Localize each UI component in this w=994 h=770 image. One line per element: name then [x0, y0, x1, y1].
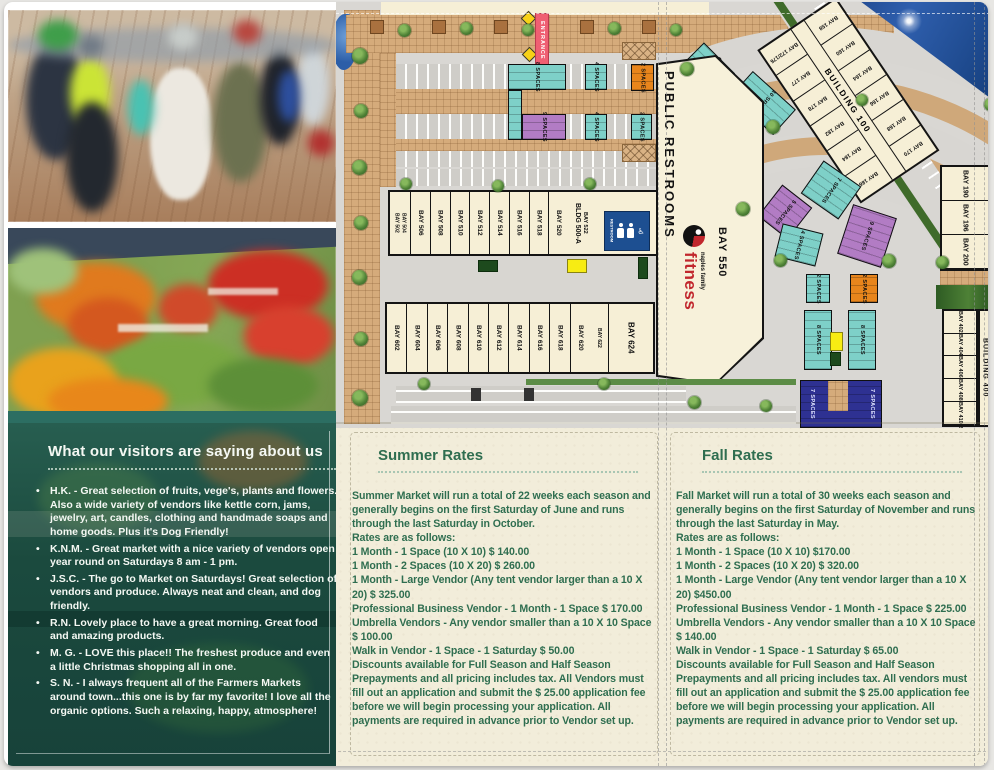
bay-label: BAY 608: [454, 325, 461, 351]
bay-label: BAY 412: [957, 425, 963, 428]
testimonial-item: • J.S.C. - The go to Market on Saturdays…: [36, 573, 338, 614]
bay-cell: BAY 520: [549, 192, 568, 254]
photo-produce: [8, 228, 336, 425]
bay-cell: BAY 190: [942, 167, 988, 201]
bay-label: BAY 602: [393, 325, 400, 351]
bay-label: BAY 164: [852, 64, 873, 81]
walkway-band: [380, 89, 682, 114]
walkway-column: [380, 53, 396, 187]
tree: [936, 256, 949, 269]
person-shape: [128, 80, 154, 135]
testimonial-item: • K.N.M. - Great market with a nice vari…: [36, 543, 338, 570]
fall-rates-panel: Fall Rates Fall Market will run a total …: [668, 423, 980, 766]
vendor-block: 8 SPACES: [848, 310, 876, 370]
building-400-bays: BAY 402BAY 404BAY 406BAY 408BAY 410BAY 4…: [942, 309, 978, 427]
planter-bed: [478, 260, 498, 272]
bay-cell: BAY 602: [387, 304, 407, 372]
testimonial-text: H.K. - Great selection of fruits, vege's…: [50, 485, 338, 540]
tree: [352, 48, 368, 64]
rates-line: Professional Business Vendor - 1 Month -…: [352, 602, 658, 616]
vendor-block-teal-arm: [508, 90, 522, 140]
bullet: •: [36, 677, 50, 718]
summer-rates-title: Summer Rates: [378, 447, 483, 464]
tree: [400, 178, 412, 190]
bay-label: BAY 166: [869, 89, 890, 106]
bay-label: BAY 614: [516, 325, 523, 351]
vendor-block-teal-8: 8 SPACES: [508, 64, 566, 90]
testimonial-item: • R.N. Lovely place to have a great morn…: [36, 617, 338, 644]
bay-label: BAY 610: [475, 325, 482, 351]
testimonial-text: M. G. - LOVE this place!! The freshest p…: [50, 647, 338, 674]
bay-label: BAY 184: [841, 144, 862, 161]
bay-cell: BAY 200: [942, 235, 988, 269]
rates-line: Walk in Vendor - 1 Space - 1 Saturday $ …: [352, 644, 658, 658]
trim-guide: [336, 13, 988, 14]
tree: [680, 62, 694, 76]
tree: [760, 400, 772, 412]
tree: [418, 378, 430, 390]
tree: [398, 24, 411, 37]
bay-cell-622: BAY 622: [590, 304, 609, 372]
photo-market-crowd: [8, 10, 336, 222]
tree: [688, 396, 701, 409]
bay-cell: BAY 610: [469, 304, 489, 372]
bullet: •: [36, 485, 50, 540]
tree: [584, 178, 596, 190]
bay-label: BAY 622: [596, 328, 602, 348]
trim-guide: [984, 2, 985, 766]
person-shape: [66, 102, 118, 212]
person-shape: [213, 62, 268, 182]
person-shape: [233, 20, 261, 44]
bay-cell: BAY 406: [944, 356, 976, 379]
plaza: [380, 256, 668, 302]
red-bag: [308, 130, 334, 156]
site-map: ENTRANCE 8 SPACES 9 SPACES 4 SPACES 4 SP…: [336, 2, 988, 428]
bay-522-label: BAY 522: [582, 212, 588, 234]
bay-label: BAY 510: [456, 210, 463, 236]
bay-cells-506-520: BAY 506BAY 508BAY 510BAY 512BAY 514BAY 5…: [411, 192, 568, 254]
bay-label: BAY 408: [957, 379, 963, 401]
right-bays: BAY 190BAY 196BAY 200: [940, 165, 988, 271]
bay-cell: BAY 402: [944, 311, 976, 334]
greenery-band: [936, 285, 988, 309]
bay-label: BAY 606: [434, 325, 441, 351]
bay-cell: BAY 606: [428, 304, 448, 372]
parking-row: [394, 169, 670, 186]
bay-550-label: BAY 550: [716, 227, 728, 277]
tree: [492, 180, 504, 192]
lattice-planter: [622, 144, 656, 162]
vendor-block-teal-2: 2 SPACES: [631, 114, 652, 140]
planter-bed: [830, 352, 841, 366]
rates-line: Walk in Vendor - 1 Space - 1 Saturday $ …: [676, 644, 980, 658]
bldg-500a-cell: BLDG 500-A BAY 522 RESTROOM ♿: [568, 192, 656, 254]
parking-row: [396, 386, 686, 403]
rates-line: 1 Month - 2 Spaces (10 X 20) $ 260.00: [352, 559, 658, 573]
trim-guide: [974, 2, 975, 766]
restroom-sign-label: RESTROOM: [609, 219, 614, 242]
bay-label: BAY 604: [414, 325, 421, 351]
rates-line: Umbrella Vendors - Any vendor smaller th…: [676, 616, 980, 644]
testimonials-list: • H.K. - Great selection of fruits, vege…: [36, 485, 338, 721]
handicap-stall: [524, 388, 534, 401]
vendor-block-purple-9: 9 SPACES: [522, 114, 566, 140]
tree: [608, 22, 621, 35]
fold-guide: [666, 2, 667, 766]
planter-bed: [638, 257, 648, 279]
testimonial-item: • M. G. - LOVE this place!! The freshest…: [36, 647, 338, 674]
rates-line: Rates are as follows:: [676, 531, 980, 545]
bay-label: BAY 506: [417, 210, 424, 236]
fitness-wordmark: fitness: [683, 252, 700, 310]
public-restrooms-label: PUBLIC RESTROOMS: [662, 71, 677, 369]
bay-label: BAY 200: [962, 238, 969, 266]
tree: [354, 332, 368, 346]
summer-rates-panel: Summer Rates Summer Market will run a to…: [348, 423, 660, 766]
person-shape: [38, 20, 78, 50]
tree: [856, 94, 868, 106]
tree: [522, 24, 534, 36]
brussels-sprouts: [8, 248, 78, 294]
rates-line: Discounts available for Full Season and …: [352, 658, 658, 728]
vendor-block-navy: 7 SPACES 7 SPACES: [800, 380, 882, 428]
bay-label: BAY 402: [957, 311, 963, 333]
fall-rates-text: Fall Market will run a total of 30 weeks…: [676, 489, 980, 728]
bay-label: BAY 190: [962, 170, 969, 198]
bay-label: BAY 508: [437, 210, 444, 236]
tomatoes: [244, 306, 334, 366]
tree: [882, 254, 896, 268]
tree: [766, 120, 780, 134]
vendor-block: 2 SPACES: [850, 274, 878, 303]
bay-cell: BAY 618: [550, 304, 570, 372]
bay-cell: BAY 516: [510, 192, 530, 254]
bullet: •: [36, 617, 50, 644]
rates-line: Umbrella Vendors - Any vendor smaller th…: [352, 616, 658, 644]
bay-label: BAY 196: [962, 204, 969, 232]
rates-line: 1 Month - 1 Space (10 X 10) $ 140.00: [352, 545, 658, 559]
bullet: •: [36, 647, 50, 674]
entrance-banner: ENTRANCE: [535, 13, 549, 67]
vendor-cart: [150, 68, 212, 200]
green-peppers: [208, 358, 318, 413]
bay-label: BAY 406: [957, 356, 963, 378]
testimonial-item: • H.K. - Great selection of fruits, vege…: [36, 485, 338, 540]
handicap-stall: [471, 388, 481, 401]
vendor-block: 2 SPACES: [806, 274, 830, 303]
brochure-page: What our visitors are saying about us • …: [4, 2, 988, 766]
testimonial-text: S. N. - I always frequent all of the Far…: [50, 677, 338, 718]
bay-cell: BAY 408: [944, 379, 976, 402]
tree: [598, 378, 610, 390]
bay-label: BAY 404: [957, 334, 963, 356]
panel-seam: [336, 422, 988, 424]
tree: [352, 390, 368, 406]
bay-label: BAY 520: [555, 210, 562, 236]
bay-cell: BAY 510: [451, 192, 471, 254]
bay-cell: BAY 608: [448, 304, 468, 372]
testimonial-text: J.S.C. - The go to Market on Saturdays! …: [50, 573, 338, 614]
bay-label: BAY 170: [902, 139, 923, 156]
bay-label: BAY 172/176: [768, 41, 798, 64]
bay-label: BAY 177: [790, 69, 811, 86]
bay-label: BAY 514: [496, 210, 503, 236]
bay-cell: BAY 614: [509, 304, 529, 372]
yellow-kiosk: [830, 332, 843, 351]
tree: [352, 160, 367, 175]
wheelchair-icon: ♿: [637, 227, 644, 236]
bay-label: BAY 410: [957, 402, 963, 424]
bay-label: BAY 612: [495, 325, 502, 351]
vendor-block: 8 SPACES: [804, 310, 832, 370]
bay-label: BAY 502: [394, 213, 400, 233]
testimonials-title: What our visitors are saying about us: [48, 443, 323, 460]
restroom-sign: RESTROOM ♿: [604, 211, 650, 251]
vendor-block-orange-2: 2 SPACES: [631, 64, 654, 91]
bay-cell: BAY 508: [431, 192, 451, 254]
planter: [642, 20, 656, 34]
bay-label: BAY 158: [818, 14, 839, 31]
dotted-rule: [378, 471, 638, 473]
walkway-band: [940, 271, 988, 285]
person-shape: [168, 24, 198, 50]
planter: [580, 20, 594, 34]
restrooms-building: PUBLIC RESTROOMS BAY 550 naples family f…: [658, 57, 762, 383]
bay-label: BAY 512: [476, 210, 483, 236]
bay-label: BAY 616: [536, 325, 543, 351]
bay-cell: BAY 620: [571, 304, 590, 372]
testimonial-text: R.N. Lovely place to have a great mornin…: [50, 617, 338, 644]
tree: [670, 24, 682, 36]
planter: [494, 20, 508, 34]
yellow-kiosk: [567, 259, 587, 273]
female-figure-icon: [627, 223, 634, 239]
vendor-block-teal-4: 4 SPACES: [585, 64, 607, 90]
bay-label: BAY 620: [577, 325, 584, 351]
entrance-label: ENTRANCE: [539, 21, 545, 60]
tree: [774, 254, 787, 267]
bay-label: BAY 518: [535, 210, 542, 236]
testimonial-text: K.N.M. - Great market with a nice variet…: [50, 543, 338, 570]
bay-label: BAY 168: [885, 114, 906, 131]
basket-edge: [208, 288, 278, 295]
lattice-planter: [622, 42, 656, 60]
bay-cell: BAY 612: [489, 304, 509, 372]
tree: [354, 104, 368, 118]
rates-line: 1 Month - 2 Spaces (10 X 20) $ 320.00: [676, 559, 980, 573]
basket-edge: [118, 324, 208, 332]
bay-cell: BAY 604: [407, 304, 427, 372]
bldg-500a-label: BLDG 500-A: [574, 203, 581, 244]
fold-guide: [658, 2, 659, 766]
testimonial-item: • S. N. - I always frequent all of the F…: [36, 677, 338, 718]
produce-hint: [198, 431, 308, 491]
male-figure-icon: [617, 223, 624, 239]
bay-cell: BAY 404: [944, 334, 976, 357]
bay-label: BAY 624: [627, 322, 636, 354]
rates-line: 1 Month - Large Vendor (Any tent vendor …: [676, 573, 980, 601]
bay-label: BAY 178: [807, 94, 828, 111]
bay-cell: BAY 616: [530, 304, 550, 372]
planter: [432, 20, 446, 34]
bay-cells-602-620: BAY 602BAY 604BAY 606BAY 608BAY 610BAY 6…: [387, 304, 590, 372]
dotted-rule: [702, 471, 962, 473]
testimonials-panel: What our visitors are saying about us • …: [8, 423, 344, 766]
rates-line: Summer Market will run a total of 22 wee…: [352, 489, 658, 531]
bay-cell: BAY 518: [530, 192, 550, 254]
bay-cell: BAY 412: [944, 425, 976, 428]
tree: [460, 22, 473, 35]
bay-label: BAY 618: [556, 325, 563, 351]
fitness-logo: naples family fitness: [676, 225, 712, 345]
person-shape: [296, 46, 330, 126]
bay-cell: BAY 514: [490, 192, 510, 254]
bay-label: BAY 516: [516, 210, 523, 236]
bullet: •: [36, 543, 50, 570]
bay-cell: BAY 512: [470, 192, 490, 254]
dotted-rule: [48, 468, 336, 470]
bay-label: BAY 160: [835, 39, 856, 56]
green-verge: [526, 379, 796, 385]
fall-rates-title: Fall Rates: [702, 447, 773, 464]
bullet: •: [36, 573, 50, 614]
rates-line: 1 Month - 1 Space (10 X 10) $170.00: [676, 545, 980, 559]
tree: [354, 216, 368, 230]
bay-cell-624: BAY 624: [609, 304, 653, 372]
bay-building-500: BAY 502 BAY 504 BAY 506BAY 508BAY 510BAY…: [388, 190, 658, 256]
blue-bag: [278, 70, 300, 122]
tree: [352, 270, 367, 285]
bay-cell-502-504: BAY 502 BAY 504: [390, 192, 411, 254]
rates-line: Fall Market will run a total of 30 weeks…: [676, 489, 980, 531]
trim-guide: [338, 751, 986, 752]
building-400: BUILDING 400: [978, 309, 988, 427]
fountain-sparkle: [896, 8, 922, 34]
fitness-ball-icon: [683, 225, 705, 247]
bay-cell: BAY 506: [411, 192, 431, 254]
rates-line: 1 Month - Large Vendor (Any tent vendor …: [352, 573, 658, 601]
planter: [370, 20, 384, 34]
rates-line: Rates are as follows:: [352, 531, 658, 545]
bay-label: BAY 504: [401, 213, 407, 233]
vendor-block-teal-4: 4 SPACES: [585, 114, 607, 140]
bay-label: BAY 186: [858, 170, 879, 187]
summer-rates-text: Summer Market will run a total of 22 wee…: [352, 489, 658, 728]
bay-building-600: BAY 602BAY 604BAY 606BAY 608BAY 610BAY 6…: [385, 302, 655, 374]
tree: [736, 202, 750, 216]
fitness-subtitle: naples family: [700, 252, 706, 310]
rates-line: Discounts available for Full Season and …: [676, 658, 980, 728]
bay-label: BAY 182: [824, 119, 845, 136]
rates-line: Professional Business Vendor - 1 Month -…: [676, 602, 980, 616]
walkway-notch: [828, 381, 848, 411]
bay-cell: BAY 196: [942, 201, 988, 235]
